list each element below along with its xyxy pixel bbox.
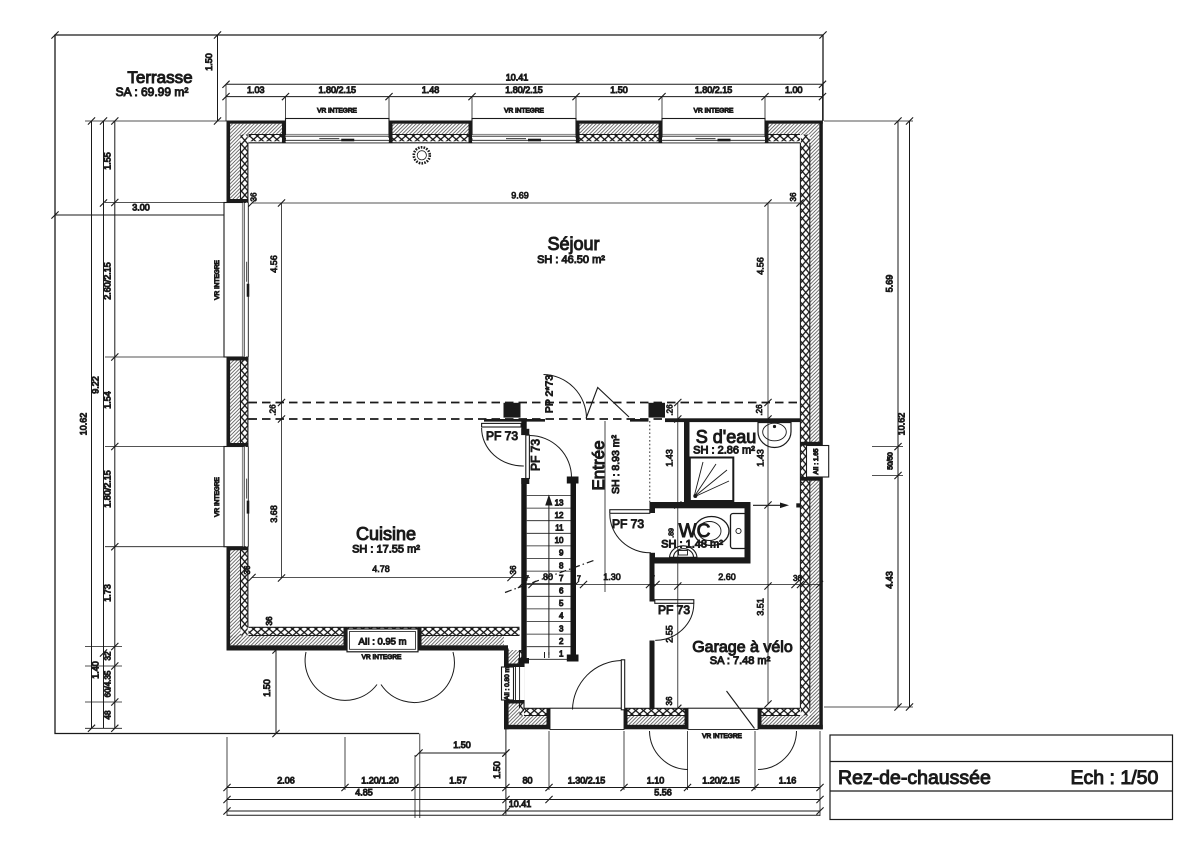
svg-text:36: 36 [250, 192, 259, 201]
svg-text:1.48: 1.48 [422, 85, 440, 95]
svg-text:Cuisine: Cuisine [356, 524, 416, 544]
svg-text:1.43: 1.43 [665, 449, 675, 467]
svg-text:13: 13 [555, 498, 564, 507]
svg-text:.26: .26 [269, 404, 278, 416]
svg-text:10.62: 10.62 [79, 413, 89, 436]
svg-text:4: 4 [559, 612, 564, 621]
svg-text:AIl : 0.95 m: AIl : 0.95 m [358, 637, 406, 648]
svg-text:10.62: 10.62 [897, 413, 907, 436]
svg-text:5: 5 [559, 599, 564, 608]
svg-text:Garage à vélo: Garage à vélo [692, 639, 793, 656]
svg-text:VR INTEGRE: VR INTEGRE [362, 654, 402, 661]
svg-text:SA : 69.99 m²: SA : 69.99 m² [116, 85, 189, 99]
svg-text:12: 12 [555, 511, 564, 520]
svg-text:1.20/2.15: 1.20/2.15 [702, 776, 740, 786]
svg-text:1.10: 1.10 [647, 776, 665, 786]
svg-text:2.55: 2.55 [665, 625, 675, 643]
svg-text:80: 80 [522, 776, 532, 786]
svg-text:3.51: 3.51 [756, 598, 766, 616]
svg-text:PF 73: PF 73 [612, 517, 644, 531]
svg-text:.89: .89 [669, 528, 676, 538]
svg-text:5.69: 5.69 [885, 275, 895, 293]
svg-text:SH : 2.86 m²: SH : 2.86 m² [693, 445, 755, 457]
svg-text:.26: .26 [666, 404, 675, 416]
svg-text:10.41: 10.41 [509, 799, 532, 809]
svg-text:1.30/2.15: 1.30/2.15 [568, 776, 606, 786]
svg-text:2.06: 2.06 [277, 776, 295, 786]
svg-text:9.69: 9.69 [511, 191, 529, 201]
svg-text:1.80/2.15: 1.80/2.15 [505, 85, 543, 95]
svg-text:2.60: 2.60 [718, 572, 736, 582]
svg-text:4.56: 4.56 [756, 257, 766, 275]
svg-text:5.56: 5.56 [654, 788, 672, 798]
svg-text:1.03: 1.03 [247, 85, 265, 95]
svg-text:36: 36 [509, 565, 518, 574]
svg-text:1.57: 1.57 [449, 776, 467, 786]
svg-text:VR INTEGRE: VR INTEGRE [214, 476, 221, 516]
svg-text:36: 36 [243, 565, 252, 574]
svg-text:36: 36 [789, 192, 798, 201]
svg-text:4.43: 4.43 [885, 571, 895, 589]
svg-text:48: 48 [104, 710, 113, 719]
svg-text:3.00: 3.00 [132, 203, 150, 213]
svg-text:1.16: 1.16 [779, 776, 797, 786]
svg-text:PF 73: PF 73 [486, 429, 518, 443]
svg-text:VR INTEGRE: VR INTEGRE [702, 733, 742, 740]
svg-text:1.54: 1.54 [103, 391, 113, 409]
svg-text:8: 8 [559, 561, 564, 570]
svg-text:1.50: 1.50 [262, 679, 272, 697]
svg-text:1.80/2.15: 1.80/2.15 [695, 85, 733, 95]
svg-text:Ech : 1/50: Ech : 1/50 [1071, 767, 1159, 789]
svg-text:1.43: 1.43 [756, 449, 766, 467]
svg-text:7: 7 [525, 576, 529, 583]
svg-text:VR INTEGRE: VR INTEGRE [504, 108, 544, 115]
svg-text:PP 2*73: PP 2*73 [544, 375, 556, 413]
svg-text:10.41: 10.41 [506, 73, 529, 83]
svg-text:1.20/1.20: 1.20/1.20 [361, 776, 399, 786]
svg-text:1.30: 1.30 [603, 572, 621, 582]
svg-text:VR INTEGRE: VR INTEGRE [694, 108, 734, 115]
svg-text:1.50: 1.50 [204, 53, 214, 71]
svg-text:3: 3 [559, 624, 564, 633]
svg-text:36: 36 [265, 616, 274, 625]
svg-text:.26: .26 [509, 404, 518, 416]
svg-text:4.56: 4.56 [269, 255, 279, 273]
svg-text:AIl : 0.80 m: AIl : 0.80 m [504, 667, 511, 700]
svg-text:Entrée: Entrée [589, 440, 608, 490]
svg-text:AII : 1.65: AII : 1.65 [813, 448, 820, 474]
svg-text:11: 11 [555, 524, 564, 533]
svg-text:1.55: 1.55 [103, 152, 113, 170]
svg-text:1.50: 1.50 [492, 761, 502, 779]
svg-text:2.60/2.15: 2.60/2.15 [103, 262, 113, 300]
svg-text:2: 2 [559, 637, 564, 646]
svg-text:SH : 1.48 m²: SH : 1.48 m² [661, 539, 723, 551]
svg-text:.26: .26 [755, 404, 764, 416]
svg-text:SH : 17.55 m²: SH : 17.55 m² [352, 544, 420, 556]
svg-text:9: 9 [559, 549, 564, 558]
svg-text:7: 7 [559, 574, 564, 583]
svg-text:4.85: 4.85 [355, 788, 373, 798]
svg-text:1.80/2.15: 1.80/2.15 [319, 85, 357, 95]
svg-text:36: 36 [793, 574, 802, 583]
svg-text:1.50: 1.50 [453, 740, 471, 750]
svg-text:1.80/2.15: 1.80/2.15 [103, 470, 113, 508]
svg-text:VR INTEGRE: VR INTEGRE [214, 259, 221, 299]
svg-text:7: 7 [651, 576, 655, 583]
svg-text:50/50: 50/50 [888, 452, 895, 470]
svg-text:4.78: 4.78 [372, 564, 390, 574]
svg-text:6: 6 [559, 587, 564, 596]
svg-text:3.68: 3.68 [269, 505, 279, 523]
svg-text:1.40: 1.40 [91, 661, 101, 679]
svg-text:80: 80 [543, 572, 553, 582]
svg-text:1.00: 1.00 [785, 85, 803, 95]
svg-text:1: 1 [559, 650, 564, 659]
svg-text:9.22: 9.22 [91, 376, 101, 394]
svg-text:PF 73: PF 73 [529, 439, 543, 471]
svg-text:VR INTEGRE: VR INTEGRE [317, 108, 357, 115]
svg-text:Séjour: Séjour [547, 234, 599, 254]
svg-text:36: 36 [665, 696, 674, 705]
svg-text:1.73: 1.73 [103, 584, 113, 602]
svg-text:10: 10 [555, 536, 564, 545]
svg-text:7: 7 [577, 576, 581, 583]
svg-text:1.50: 1.50 [610, 85, 628, 95]
svg-text:SH : 46.50 m²: SH : 46.50 m² [537, 254, 605, 266]
svg-text:Rez-de-chaussée: Rez-de-chaussée [838, 767, 991, 789]
svg-text:PF 73: PF 73 [658, 603, 690, 617]
svg-text:SA : 7.48 m²: SA : 7.48 m² [710, 655, 771, 667]
svg-text:SH : 8.93 m²: SH : 8.93 m² [610, 435, 622, 494]
svg-text:60/4.35: 60/4.35 [104, 670, 113, 697]
svg-text:32: 32 [104, 651, 113, 660]
